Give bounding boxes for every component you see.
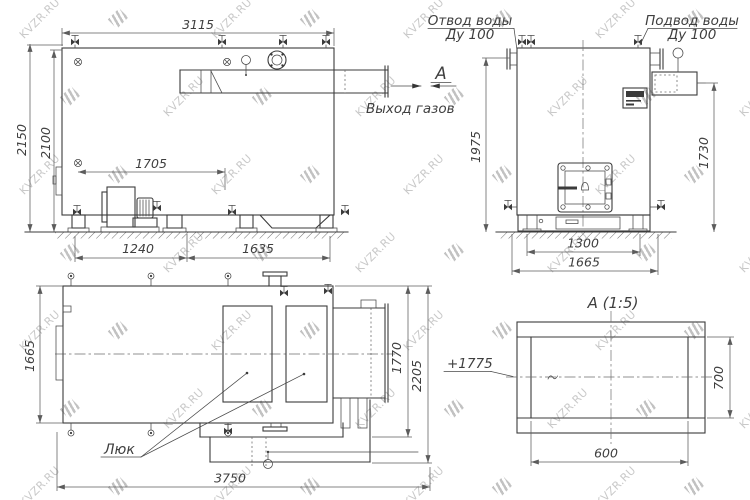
control-panel-icon [623,88,647,108]
top-view-body [55,272,418,469]
valve-icon [527,36,535,46]
valve-icon [657,201,665,211]
front-view-body [504,36,705,233]
dim-1300-label: 1300 [567,236,599,251]
valve-icon [228,206,236,216]
water-inlet-flange [650,49,663,69]
front-view-labels: Отвод воды Ду 100 Подвод воды Ду 100 [428,13,740,50]
dim-1240-label: 1240 [122,241,154,256]
valve-icon [280,287,288,297]
valve-icon [218,36,226,46]
valve-icon [504,201,512,211]
gas-outlet-label: Выход газов [366,101,455,117]
hatch-label: Люк [103,442,135,458]
valve-icon [341,206,349,216]
front-view-dimensions: 1975 1730 1300 1665 [468,58,718,275]
valve-icon [322,36,330,46]
side-view-body [53,36,388,233]
section-title: А (1:5) [587,294,639,312]
dim-1665-front-label: 1665 [568,255,600,270]
lifting-lug-icon [223,58,230,65]
blower-assembly [101,187,159,232]
dim-600-label: 600 [594,446,618,461]
anchor-bolt-icon [68,430,74,436]
drawing-sheet: KVZR.RUKVZR.RUKVZR.RUKVZR.RUKVZR.RUKVZR.… [0,0,750,500]
lifting-lug-icon [74,159,81,166]
break-mark-icon [548,376,558,379]
water-outlet-flange [507,49,517,69]
dim-2100-label: 2100 [38,127,53,159]
dim-1770-label: 1770 [389,342,404,374]
dim-1665-top-label: 1665 [22,340,37,372]
side-view: 3115 2150 2100 1705 1240 1635 [14,17,456,262]
hatch-callout: Люк [101,372,305,458]
dim-2205-label: 2205 [409,360,424,392]
boiler-technical-drawing: 3115 2150 2100 1705 1240 1635 [0,0,750,500]
valve-handwheel-icon [673,48,683,58]
furnace-door [558,163,612,212]
dim-2150-label: 2150 [14,124,29,156]
anchor-bolt-icon [68,273,74,279]
valve-icon [73,206,81,216]
dim-1705-label: 1705 [135,156,167,171]
water-inlet-label-line2: Ду 100 [667,27,717,43]
dim-3115-label: 3115 [182,17,214,32]
section-duct [506,311,716,444]
dim-1975-label: 1975 [468,131,483,163]
top-view: Люк 1665 1770 2205 [22,272,432,491]
water-outlet-label-line2: Ду 100 [445,27,495,43]
anchor-bolt-icon [148,430,154,436]
anchor-bolt-icon [225,273,231,279]
valve-icon [518,36,526,46]
front-view: Отвод воды Ду 100 Подвод воды Ду 100 197… [428,13,740,275]
section-dimensions: +1775 600 700 [444,337,734,466]
front-view-base [518,215,650,232]
sight-glass-icon [242,56,251,65]
anchor-bolt-icon [148,273,154,279]
section-arrow-label: A [434,64,446,83]
keyhole-icon [582,183,589,191]
elevation-label: +1775 [447,356,493,372]
ground-line [25,232,348,239]
valve-icon [279,36,287,46]
dim-700-label: 700 [711,366,726,390]
gas-outlet-callout: A Выход газов [366,64,456,117]
dim-1635-label: 1635 [242,241,274,256]
lifting-lug-icon [74,58,81,65]
valve-icon [153,202,161,212]
section-view: А (1:5) +1775 600 [444,294,734,466]
drain-pipe-icon [264,460,273,469]
valve-icon [71,36,79,46]
dim-3750-label: 3750 [214,471,246,486]
flange-circle-icon [268,51,286,69]
dim-1730-label: 1730 [696,137,711,169]
